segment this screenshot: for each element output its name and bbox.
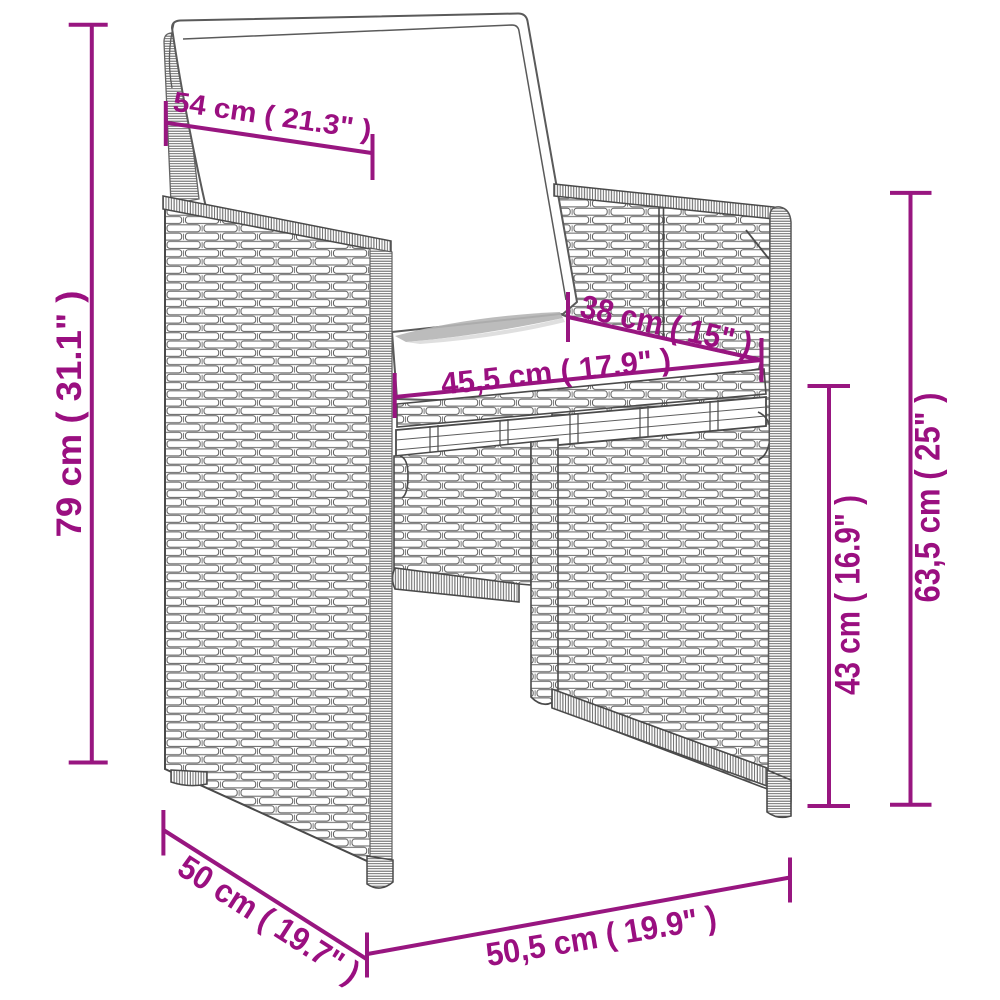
svg-text:43 cm ( 16.9" ): 43 cm ( 16.9" ) — [829, 495, 868, 695]
svg-text:79 cm ( 31.1" ): 79 cm ( 31.1" ) — [50, 291, 89, 538]
svg-text:63,5 cm ( 25" ): 63,5 cm ( 25" ) — [909, 393, 948, 603]
